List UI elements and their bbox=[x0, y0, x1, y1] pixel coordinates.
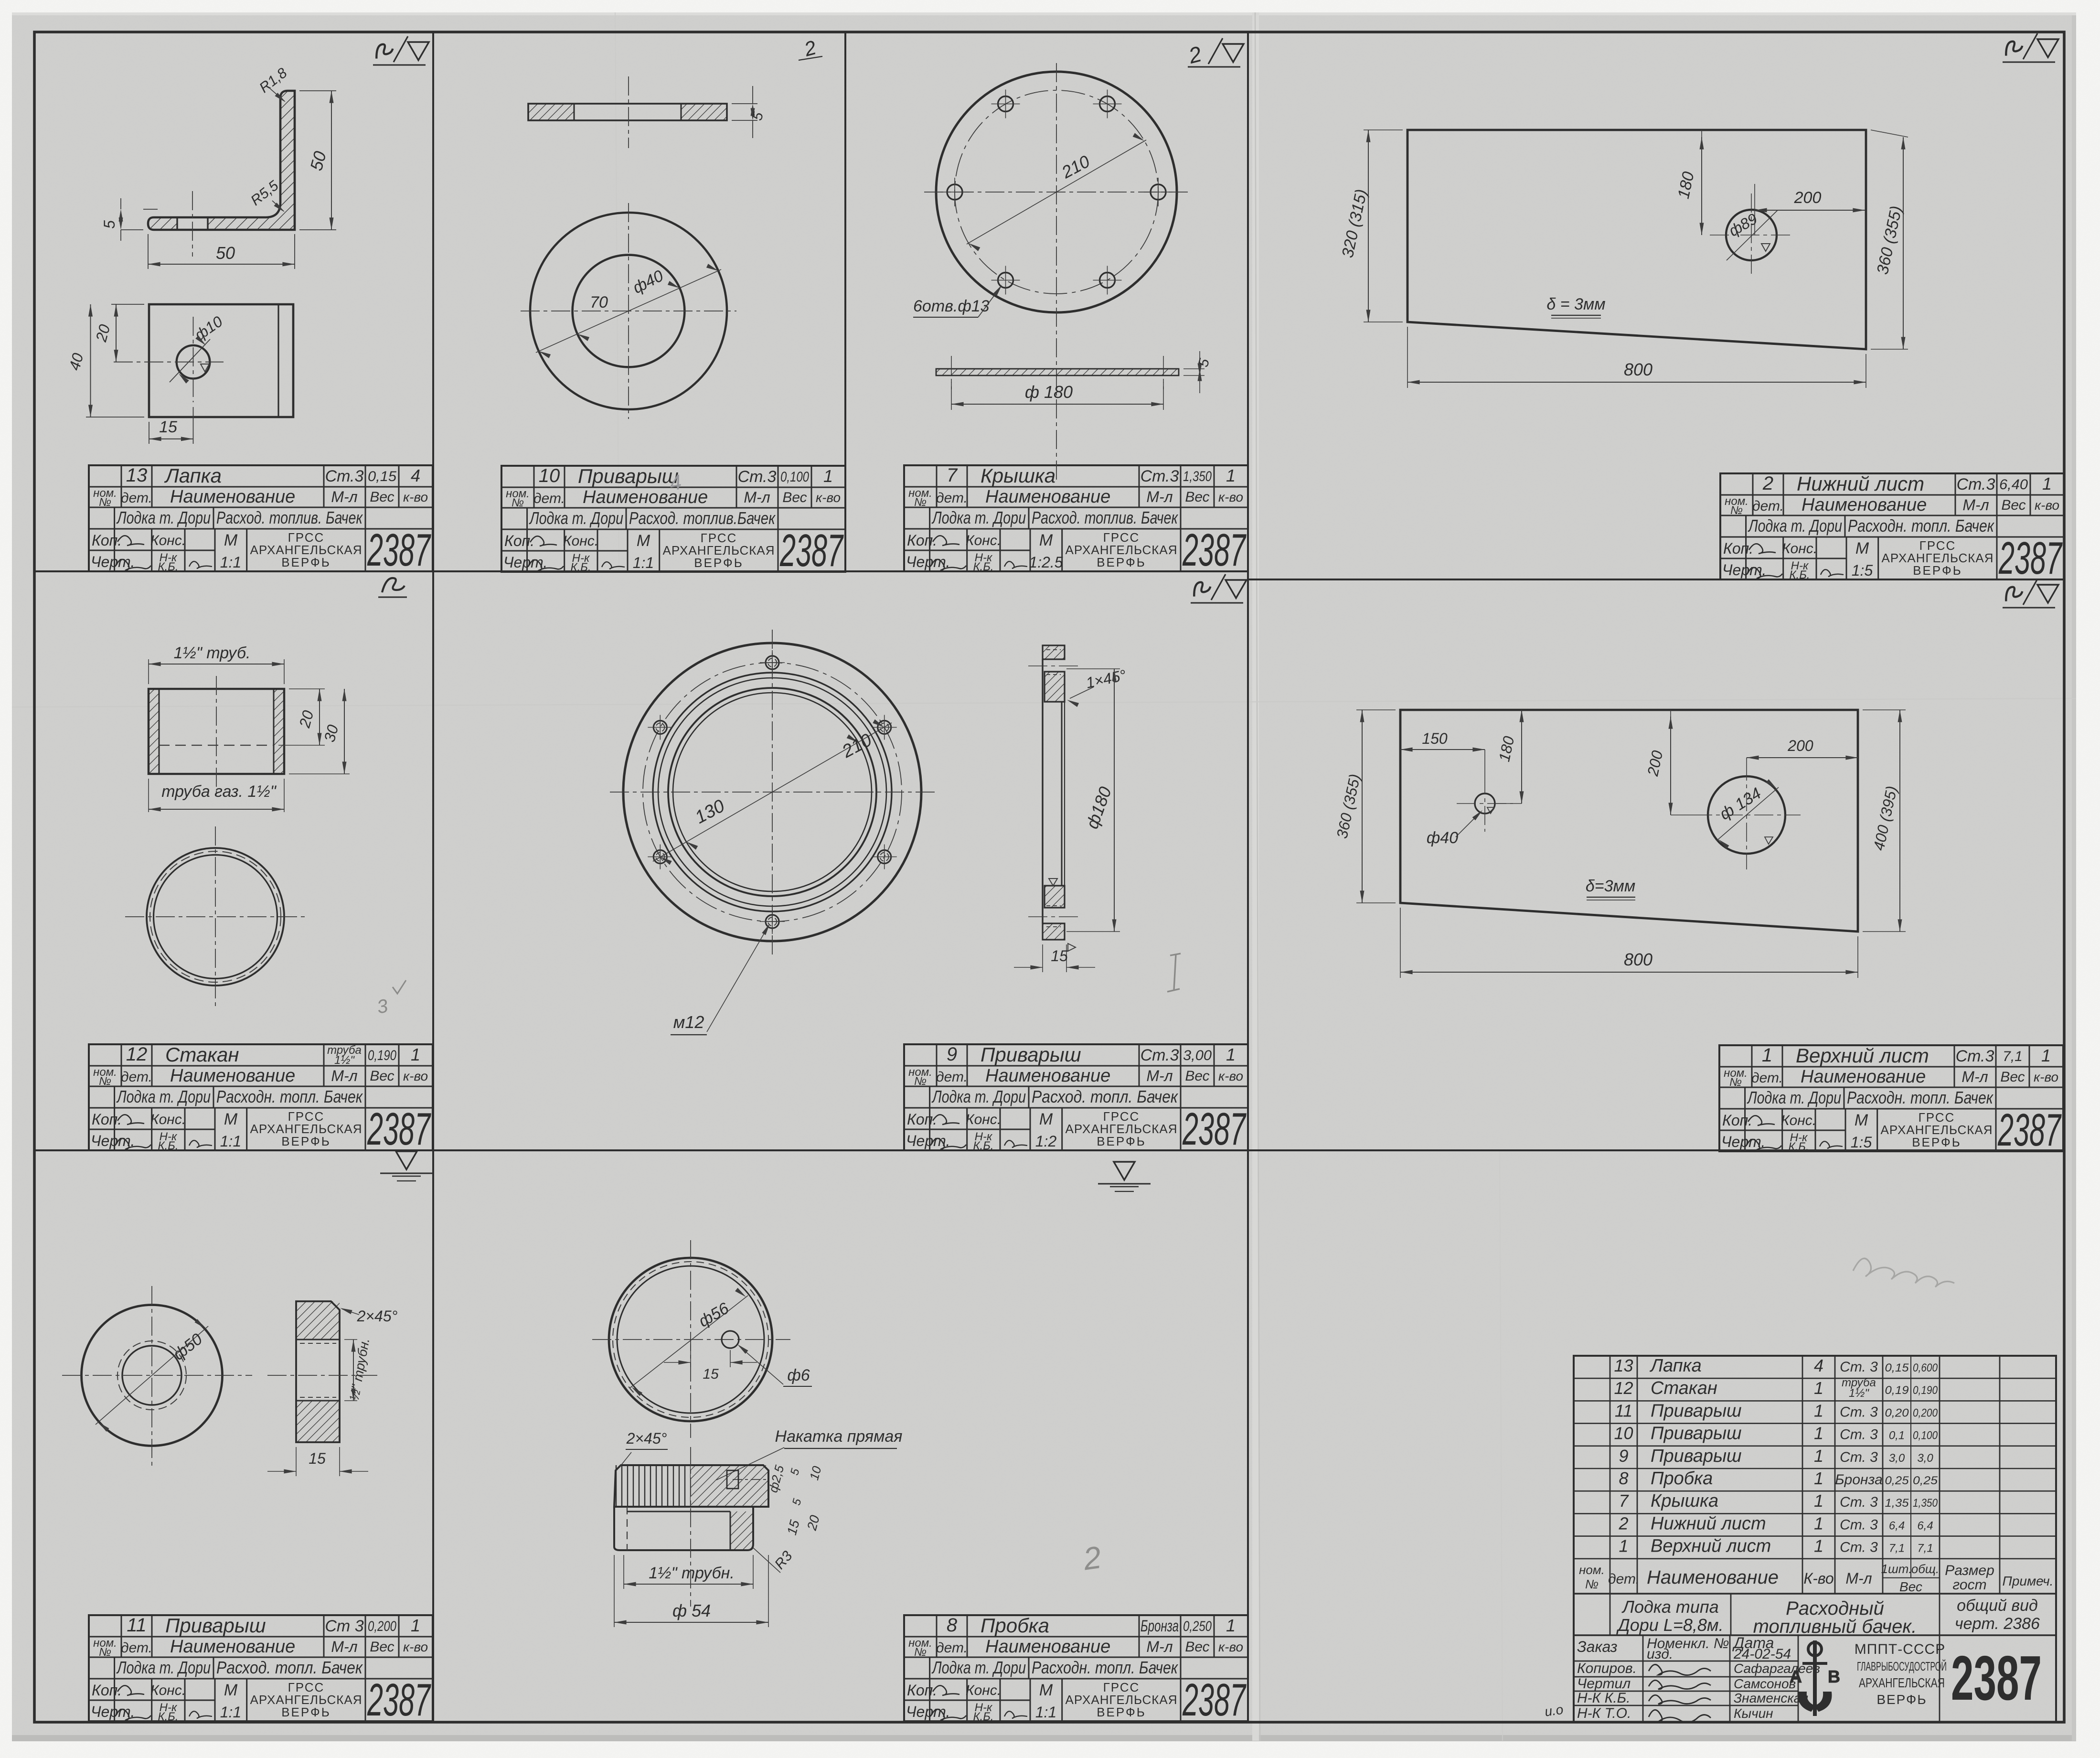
svg-text:12: 12 bbox=[126, 1044, 148, 1065]
svg-text:№: № bbox=[1585, 1577, 1599, 1591]
svg-text:к-во: к-во bbox=[1218, 490, 1243, 504]
svg-text:Вес: Вес bbox=[1185, 1068, 1209, 1084]
svg-text:δ = 3мм: δ = 3мм bbox=[1546, 295, 1605, 313]
svg-text:Ст.3: Ст.3 bbox=[1141, 467, 1179, 485]
svg-text:Нижний лист: Нижний лист bbox=[1797, 472, 1924, 495]
svg-text:дет.: дет. bbox=[936, 1640, 968, 1656]
svg-text:ГЛАВРЫБОСУДОСТРОЙ: ГЛАВРЫБОСУДОСТРОЙ bbox=[1857, 1659, 1947, 1673]
svg-text:К.Б.: К.Б. bbox=[1788, 1140, 1809, 1153]
svg-text:ф6: ф6 bbox=[787, 1366, 810, 1384]
svg-text:изд.: изд. bbox=[1647, 1646, 1673, 1662]
svg-text:Лодка т. Дори: Лодка т. Дори bbox=[1747, 1088, 1841, 1107]
svg-text:6,40: 6,40 bbox=[1999, 477, 2028, 493]
svg-text:№: № bbox=[99, 1646, 111, 1659]
svg-text:М-л: М-л bbox=[331, 488, 357, 505]
svg-text:2387: 2387 bbox=[1182, 1104, 1247, 1155]
svg-text:ф 180: ф 180 bbox=[1025, 382, 1073, 402]
svg-text:1,35: 1,35 bbox=[1885, 1497, 1909, 1510]
svg-text:1½" труб.: 1½" труб. bbox=[174, 644, 251, 662]
svg-text:11: 11 bbox=[127, 1615, 147, 1636]
svg-text:№: № bbox=[99, 1075, 111, 1088]
svg-text:АРХАНГЕЛЬСКАЯ: АРХАНГЕЛЬСКАЯ bbox=[1859, 1675, 1945, 1690]
svg-text:Вес: Вес bbox=[370, 1068, 394, 1084]
svg-text:Конс.: Конс. bbox=[150, 1112, 186, 1127]
svg-text:2387: 2387 bbox=[1997, 1104, 2062, 1156]
svg-text:Наименование: Наименование bbox=[1802, 495, 1927, 515]
svg-text:К-во: К-во bbox=[1803, 1570, 1834, 1587]
svg-text:Наименование: Наименование bbox=[170, 1637, 295, 1657]
svg-text:Ст. 3: Ст. 3 bbox=[1840, 1449, 1878, 1465]
svg-text:Нижний лист: Нижний лист bbox=[1651, 1513, 1766, 1533]
svg-text:4: 4 bbox=[1814, 1356, 1823, 1375]
svg-text:200: 200 bbox=[1787, 737, 1813, 754]
svg-text:1,350: 1,350 bbox=[1913, 1497, 1938, 1510]
svg-text:Коп.: Коп. bbox=[92, 1111, 122, 1128]
svg-text:0,600: 0,600 bbox=[1913, 1361, 1938, 1374]
svg-text:7,1: 7,1 bbox=[1917, 1542, 1933, 1555]
svg-text:К.Б.: К.Б. bbox=[973, 560, 993, 573]
svg-text:0,15: 0,15 bbox=[368, 469, 396, 484]
svg-text:1: 1 bbox=[1814, 1401, 1823, 1420]
svg-text:Расход. топлив. Бачек: Расход. топлив. Бачек bbox=[1032, 508, 1179, 527]
svg-text:Наименование: Наименование bbox=[1647, 1567, 1779, 1588]
svg-text:Приварыш: Приварыш bbox=[578, 465, 679, 487]
svg-text:м12: м12 bbox=[673, 1012, 704, 1032]
svg-text:К.Б.: К.Б. bbox=[158, 560, 178, 573]
svg-text:к-во: к-во bbox=[2034, 1070, 2058, 1084]
svg-text:Вес: Вес bbox=[370, 489, 394, 505]
svg-text:2387: 2387 bbox=[367, 525, 431, 576]
svg-text:Крышка: Крышка bbox=[981, 464, 1055, 487]
svg-text:К.Б.: К.Б. bbox=[973, 1710, 993, 1723]
svg-text:М: М bbox=[224, 1110, 238, 1128]
svg-text:Коп.: Коп. bbox=[1722, 1112, 1752, 1129]
svg-text:3,0: 3,0 bbox=[1889, 1452, 1905, 1465]
svg-text:Стакан: Стакан bbox=[1651, 1378, 1717, 1398]
svg-text:к-во: к-во bbox=[403, 1640, 428, 1654]
svg-text:6отв.ф13: 6отв.ф13 bbox=[913, 297, 990, 315]
svg-text:М: М bbox=[224, 1681, 238, 1699]
svg-text:дет.: дет. bbox=[1751, 1070, 1783, 1086]
svg-text:Н-К Т.О.: Н-К Т.О. bbox=[1577, 1705, 1631, 1721]
svg-text:МППТ-СССР: МППТ-СССР bbox=[1855, 1641, 1945, 1657]
svg-text:к-во: к-во bbox=[403, 490, 428, 504]
svg-text:1: 1 bbox=[1226, 1616, 1236, 1635]
svg-text:3,0: 3,0 bbox=[1917, 1452, 1933, 1465]
svg-text:Черт.: Черт. bbox=[1721, 1133, 1765, 1150]
svg-text:Расход. топлив. Бачек: Расход. топлив. Бачек bbox=[216, 508, 363, 527]
svg-text:Лодка т. Дори: Лодка т. Дори bbox=[116, 508, 211, 527]
svg-text:Коп.: Коп. bbox=[92, 532, 122, 549]
svg-text:дет.: дет. bbox=[121, 1640, 152, 1656]
svg-text:Самсонов: Самсонов bbox=[1734, 1676, 1796, 1691]
svg-text:Конс.: Конс. bbox=[966, 1683, 1001, 1698]
svg-text:13: 13 bbox=[1614, 1356, 1633, 1375]
svg-text:А: А bbox=[1790, 1667, 1802, 1686]
svg-text:10: 10 bbox=[1614, 1424, 1633, 1443]
svg-text:М-л: М-л bbox=[744, 489, 770, 506]
svg-text:1½": 1½" bbox=[1849, 1387, 1869, 1400]
svg-text:К.Б.: К.Б. bbox=[1789, 568, 1810, 581]
svg-text:200: 200 bbox=[1794, 189, 1822, 207]
svg-text:1:1: 1:1 bbox=[220, 554, 241, 571]
svg-text:Лодка т. Дори: Лодка т. Дори bbox=[931, 508, 1026, 527]
svg-text:1½" трубн.: 1½" трубн. bbox=[649, 1564, 735, 1582]
svg-text:δ=3мм: δ=3мм bbox=[1586, 877, 1635, 895]
svg-text:150: 150 bbox=[1422, 730, 1448, 747]
svg-text:Приварыш: Приварыш bbox=[1651, 1401, 1742, 1421]
svg-text:2387: 2387 bbox=[367, 1674, 431, 1726]
svg-text:Наименование: Наименование bbox=[1801, 1067, 1926, 1087]
svg-text:дет.: дет. bbox=[1608, 1571, 1640, 1587]
svg-text:Кычин: Кычин bbox=[1734, 1706, 1773, 1721]
svg-text:2387: 2387 bbox=[1182, 1674, 1247, 1726]
svg-text:1,350: 1,350 bbox=[1183, 469, 1212, 484]
svg-text:дет.: дет. bbox=[121, 490, 152, 506]
svg-text:Ст.3: Ст.3 bbox=[1141, 1046, 1179, 1064]
svg-text:М-л: М-л bbox=[1146, 1638, 1173, 1655]
svg-text:1:1: 1:1 bbox=[1035, 1704, 1056, 1721]
svg-text:2×45°: 2×45° bbox=[357, 1308, 398, 1325]
svg-text:8: 8 bbox=[947, 1615, 958, 1636]
svg-text:2: 2 bbox=[1762, 473, 1773, 494]
svg-text:Лодка т. Дори: Лодка т. Дори bbox=[116, 1658, 211, 1677]
svg-text:7,1: 7,1 bbox=[1889, 1542, 1905, 1555]
svg-text:Лодка т. Дори: Лодка т. Дори bbox=[116, 1087, 211, 1106]
svg-text:М: М bbox=[637, 532, 650, 550]
svg-text:1: 1 bbox=[2041, 1046, 2051, 1065]
svg-text:Черт.: Черт. bbox=[91, 1703, 135, 1720]
svg-text:1: 1 bbox=[1814, 1446, 1823, 1466]
svg-text:Размер: Размер bbox=[1945, 1563, 1994, 1578]
svg-text:К.Б.: К.Б. bbox=[158, 1139, 178, 1152]
svg-text:Конс.: Конс. bbox=[563, 533, 598, 549]
svg-text:№: № bbox=[914, 1646, 927, 1659]
svg-text:Ст. 3: Ст. 3 bbox=[1840, 1359, 1878, 1375]
svg-text:1: 1 bbox=[1762, 1045, 1772, 1066]
svg-text:0,200: 0,200 bbox=[1913, 1406, 1938, 1419]
svg-text:общий вид: общий вид bbox=[1957, 1597, 2038, 1615]
svg-text:4: 4 bbox=[411, 466, 420, 485]
svg-text:Ст. 3: Ст. 3 bbox=[1840, 1494, 1878, 1510]
svg-text:Коп.: Коп. bbox=[504, 532, 534, 549]
svg-text:Ст.3: Ст.3 bbox=[738, 468, 777, 486]
svg-text:Коп.: Коп. bbox=[1723, 540, 1753, 557]
svg-text:Лапка: Лапка bbox=[164, 464, 222, 487]
svg-text:24-02-54: 24-02-54 bbox=[1733, 1646, 1791, 1662]
svg-text:М-л: М-л bbox=[1962, 496, 1989, 514]
svg-text:2387: 2387 bbox=[1998, 533, 2063, 584]
svg-text:М-л: М-л bbox=[331, 1638, 357, 1655]
svg-text:Черт.: Черт. bbox=[906, 1703, 950, 1720]
svg-text:Вес: Вес bbox=[1899, 1579, 1922, 1594]
svg-text:Расходн. топл. Бачек: Расходн. топл. Бачек bbox=[216, 1087, 363, 1106]
svg-text:1:1: 1:1 bbox=[633, 554, 654, 571]
svg-text:1:5: 1:5 bbox=[1851, 1134, 1872, 1151]
svg-text:Приварыш: Приварыш bbox=[165, 1614, 266, 1637]
svg-text:Знаменская: Знаменская bbox=[1734, 1691, 1808, 1705]
svg-text:Расходн. топл. Бачек: Расходн. топл. Бачек bbox=[1848, 516, 1995, 536]
svg-text:Ст 3: Ст 3 bbox=[325, 1617, 363, 1635]
svg-text:0,100: 0,100 bbox=[780, 469, 809, 485]
svg-text:0,15: 0,15 bbox=[1885, 1361, 1909, 1374]
svg-text:ф 54: ф 54 bbox=[672, 1601, 711, 1620]
svg-text:2×45°: 2×45° bbox=[626, 1430, 667, 1447]
svg-text:8: 8 bbox=[1619, 1469, 1628, 1488]
svg-text:Стакан: Стакан bbox=[165, 1043, 239, 1066]
svg-text:Накатка прямая: Накатка прямая bbox=[775, 1427, 903, 1446]
svg-text:50: 50 bbox=[216, 243, 235, 263]
svg-text:Верхний лист: Верхний лист bbox=[1651, 1536, 1771, 1556]
svg-text:Вес: Вес bbox=[1185, 1639, 1209, 1655]
svg-text:1: 1 bbox=[2042, 474, 2052, 493]
svg-text:Лапка: Лапка bbox=[1649, 1356, 1702, 1376]
svg-text:М-л: М-л bbox=[1146, 488, 1173, 505]
svg-text:7,1: 7,1 bbox=[2003, 1049, 2023, 1064]
svg-text:Чертил: Чертил bbox=[1577, 1676, 1631, 1692]
svg-text:Ст.3: Ст.3 bbox=[325, 467, 364, 485]
svg-text:1½": 1½" bbox=[334, 1054, 355, 1067]
svg-text:Лодка т. Дори: Лодка т. Дори bbox=[931, 1087, 1026, 1106]
svg-text:Черт.: Черт. bbox=[503, 554, 547, 571]
svg-text:3,00: 3,00 bbox=[1183, 1048, 1212, 1063]
svg-text:Коп.: Коп. bbox=[907, 1111, 937, 1128]
svg-text:1: 1 bbox=[1814, 1378, 1823, 1398]
svg-text:труба газ. 1½": труба газ. 1½" bbox=[161, 783, 277, 801]
svg-text:Вес: Вес bbox=[782, 490, 807, 505]
svg-text:Черт.: Черт. bbox=[91, 553, 135, 570]
svg-text:Лодка т. Дори: Лодка т. Дори bbox=[1748, 516, 1842, 536]
svg-text:0,200: 0,200 bbox=[368, 1619, 396, 1634]
svg-text:ВЕРФЬ: ВЕРФЬ bbox=[1097, 1705, 1146, 1719]
svg-text:0,25: 0,25 bbox=[1913, 1474, 1938, 1487]
svg-text:ВЕРФЬ: ВЕРФЬ bbox=[694, 556, 744, 570]
svg-text:Черт.: Черт. bbox=[1722, 561, 1766, 579]
svg-text:Крышка: Крышка bbox=[1651, 1491, 1718, 1511]
svg-text:В: В bbox=[1828, 1667, 1840, 1686]
svg-text:дет.: дет. bbox=[936, 490, 968, 506]
svg-text:Лодка т. Дори: Лодка т. Дори bbox=[529, 508, 623, 528]
svg-text:М: М bbox=[1855, 1111, 1868, 1129]
svg-text:Лодка типа: Лодка типа bbox=[1621, 1597, 1718, 1617]
svg-text:Расход. топлив.Бачек: Расход. топлив.Бачек bbox=[629, 508, 776, 528]
svg-text:Расход. топл. Бачек: Расход. топл. Бачек bbox=[216, 1658, 363, 1677]
svg-text:1:5: 1:5 bbox=[1852, 562, 1873, 579]
svg-text:Вес: Вес bbox=[370, 1639, 394, 1655]
svg-text:2387: 2387 bbox=[367, 1104, 431, 1155]
svg-text:Ст.3: Ст.3 bbox=[1957, 475, 1995, 493]
svg-text:ном.: ном. bbox=[1579, 1563, 1605, 1577]
svg-text:6,4: 6,4 bbox=[1917, 1519, 1933, 1532]
svg-text:Верхний лист: Верхний лист bbox=[1796, 1044, 1929, 1067]
svg-text:2387: 2387 bbox=[779, 525, 844, 576]
svg-text:0,100: 0,100 bbox=[1913, 1429, 1938, 1442]
svg-text:Ст. 3: Ст. 3 bbox=[1840, 1404, 1878, 1420]
svg-text:70: 70 bbox=[590, 293, 608, 311]
svg-text:Наименование: Наименование bbox=[985, 487, 1110, 507]
svg-text:№: № bbox=[1730, 504, 1743, 517]
svg-text:К.Б.: К.Б. bbox=[973, 1139, 993, 1152]
svg-text:15: 15 bbox=[159, 418, 177, 436]
svg-text:0,19: 0,19 bbox=[1885, 1384, 1909, 1397]
svg-text:Дори L=8,8м.: Дори L=8,8м. bbox=[1616, 1615, 1723, 1635]
svg-text:Наименование: Наименование bbox=[583, 487, 708, 507]
svg-text:1:1: 1:1 bbox=[220, 1704, 241, 1721]
svg-text:Коп.: Коп. bbox=[907, 1682, 937, 1699]
svg-text:ВЕРФЬ: ВЕРФЬ bbox=[1876, 1692, 1927, 1707]
svg-text:Черт.: Черт. bbox=[91, 1132, 135, 1149]
svg-text:К.Б.: К.Б. bbox=[158, 1710, 178, 1723]
svg-text:2387: 2387 bbox=[1951, 1643, 2042, 1713]
svg-text:15: 15 bbox=[1051, 947, 1068, 965]
svg-text:к-во: к-во bbox=[403, 1069, 428, 1083]
svg-text:ВЕРФЬ: ВЕРФЬ bbox=[281, 555, 331, 569]
svg-text:Конс.: Конс. bbox=[966, 533, 1001, 548]
svg-text:Вес: Вес bbox=[2001, 497, 2025, 513]
svg-text:М: М bbox=[224, 531, 238, 549]
svg-text:9: 9 bbox=[947, 1044, 957, 1065]
svg-text:Ст. 3: Ст. 3 bbox=[1840, 1517, 1878, 1533]
svg-text:1: 1 bbox=[1814, 1469, 1823, 1488]
svg-text:М: М bbox=[1039, 1110, 1053, 1128]
svg-text:М-л: М-л bbox=[331, 1067, 357, 1084]
svg-text:Ст. 3: Ст. 3 bbox=[1840, 1427, 1878, 1443]
svg-text:ф40: ф40 bbox=[1427, 829, 1458, 847]
svg-text:2387: 2387 bbox=[1182, 525, 1247, 576]
svg-text:1:2: 1:2 bbox=[1035, 1133, 1057, 1150]
svg-text:1: 1 bbox=[1619, 1536, 1628, 1556]
svg-text:Наименование: Наименование bbox=[985, 1637, 1110, 1657]
svg-text:Наименование: Наименование bbox=[170, 487, 295, 507]
svg-text:Приварыш: Приварыш bbox=[981, 1043, 1081, 1066]
svg-text:Коп.: Коп. bbox=[92, 1682, 122, 1699]
svg-text:Черт.: Черт. bbox=[906, 1132, 950, 1149]
svg-text:Пробка: Пробка bbox=[1651, 1469, 1713, 1489]
svg-text:Наименование: Наименование bbox=[170, 1066, 295, 1086]
svg-text:Бронза: Бронза bbox=[1835, 1472, 1883, 1488]
svg-text:к-во: к-во bbox=[2035, 498, 2059, 513]
svg-text:2: 2 bbox=[1618, 1513, 1628, 1533]
svg-text:15: 15 bbox=[309, 1450, 326, 1467]
svg-text:1: 1 bbox=[411, 1616, 420, 1635]
svg-text:Конс.: Конс. bbox=[1781, 1113, 1816, 1128]
svg-text:дет.: дет. bbox=[121, 1069, 152, 1085]
svg-text:черт. 2386: черт. 2386 bbox=[1955, 1615, 2040, 1633]
svg-text:Конс.: Конс. bbox=[150, 533, 186, 548]
svg-text:ВЕРФЬ: ВЕРФЬ bbox=[281, 1134, 331, 1148]
svg-text:Ст. 3: Ст. 3 bbox=[1840, 1540, 1878, 1555]
svg-text:к-во: к-во bbox=[816, 490, 841, 505]
svg-text:М-л: М-л bbox=[1961, 1068, 1988, 1085]
svg-text:и.о: и.о bbox=[1544, 1702, 1564, 1719]
svg-text:0,190: 0,190 bbox=[1913, 1384, 1938, 1397]
svg-text:Черт.: Черт. bbox=[906, 553, 950, 570]
svg-text:К.Б.: К.Б. bbox=[570, 561, 591, 574]
svg-text:№: № bbox=[914, 496, 927, 509]
svg-text:ВЕРФЬ: ВЕРФЬ bbox=[281, 1705, 331, 1719]
svg-text:к-во: к-во bbox=[1218, 1640, 1243, 1654]
svg-text:1: 1 bbox=[1814, 1536, 1823, 1556]
svg-text:№: № bbox=[99, 496, 111, 509]
svg-text:Пробка: Пробка bbox=[981, 1614, 1049, 1637]
svg-text:Конс.: Конс. bbox=[150, 1683, 186, 1698]
svg-text:М: М bbox=[1855, 539, 1869, 557]
svg-text:1: 1 bbox=[1814, 1491, 1823, 1511]
svg-text:0,190: 0,190 bbox=[368, 1048, 396, 1063]
svg-text:Приварыш: Приварыш bbox=[1651, 1424, 1742, 1444]
svg-text:1: 1 bbox=[411, 1045, 420, 1064]
svg-text:к-во: к-во bbox=[1218, 1069, 1243, 1083]
svg-text:Н-К К.Б.: Н-К К.Б. bbox=[1577, 1690, 1631, 1706]
svg-text:Коп.: Коп. bbox=[907, 532, 937, 549]
svg-text:дет.: дет. bbox=[1752, 498, 1784, 514]
svg-text:1: 1 bbox=[1226, 1045, 1236, 1064]
svg-text:7: 7 bbox=[1619, 1491, 1629, 1511]
svg-text:М: М bbox=[1039, 1681, 1053, 1699]
svg-text:ВЕРФЬ: ВЕРФЬ bbox=[1097, 1134, 1146, 1148]
svg-text:Наименование: Наименование bbox=[985, 1066, 1110, 1086]
svg-text:12: 12 bbox=[1614, 1378, 1633, 1398]
svg-text:Приварыш: Приварыш bbox=[1651, 1446, 1742, 1466]
svg-text:гост: гост bbox=[1952, 1577, 1986, 1593]
svg-text:Заказ: Заказ bbox=[1577, 1638, 1618, 1655]
svg-text:1:1: 1:1 bbox=[220, 1133, 241, 1150]
svg-text:Вес: Вес bbox=[1185, 489, 1209, 505]
svg-text:0,20: 0,20 bbox=[1885, 1406, 1909, 1419]
svg-text:1шт.: 1шт. bbox=[1881, 1562, 1912, 1576]
svg-text:Расходн. топл. Бачек: Расходн. топл. Бачек bbox=[1847, 1088, 1994, 1107]
svg-text:6,4: 6,4 bbox=[1889, 1519, 1905, 1532]
svg-text:М: М bbox=[1039, 531, 1053, 549]
svg-text:ВЕРФЬ: ВЕРФЬ bbox=[1913, 563, 1962, 578]
svg-text:общ.: общ. bbox=[1911, 1562, 1939, 1576]
svg-text:М-л: М-л bbox=[1845, 1570, 1872, 1587]
svg-text:13: 13 bbox=[126, 465, 148, 486]
svg-text:Конс.: Конс. bbox=[1782, 541, 1817, 557]
svg-text:0,250: 0,250 bbox=[1183, 1619, 1212, 1634]
svg-text:11: 11 bbox=[1615, 1401, 1632, 1420]
svg-text:Лодка т. Дори: Лодка т. Дори bbox=[931, 1658, 1026, 1677]
svg-text:ВЕРФЬ: ВЕРФЬ bbox=[1912, 1135, 1961, 1149]
svg-text:5: 5 bbox=[101, 220, 118, 229]
svg-text:9: 9 bbox=[1619, 1446, 1628, 1466]
svg-text:Расходн. топл. Бачек: Расходн. топл. Бачек bbox=[1032, 1658, 1179, 1677]
svg-text:800: 800 bbox=[1624, 950, 1652, 969]
svg-text:топливный бачек.: топливный бачек. bbox=[1753, 1616, 1917, 1637]
svg-text:№: № bbox=[1729, 1076, 1742, 1089]
svg-text:М-л: М-л bbox=[1146, 1067, 1173, 1084]
svg-text:№: № bbox=[512, 496, 524, 509]
svg-text:Копиров.: Копиров. bbox=[1577, 1661, 1637, 1676]
svg-text:дет.: дет. bbox=[533, 491, 565, 506]
svg-text:0,25: 0,25 bbox=[1885, 1474, 1909, 1487]
svg-text:Ст.3: Ст.3 bbox=[1956, 1047, 1994, 1065]
svg-text:Конс.: Конс. bbox=[966, 1112, 1001, 1127]
svg-text:0,1: 0,1 bbox=[1889, 1429, 1905, 1442]
svg-text:Вес: Вес bbox=[2000, 1069, 2025, 1085]
svg-text:1: 1 bbox=[1226, 466, 1236, 485]
svg-text:Примеч.: Примеч. bbox=[2003, 1574, 2054, 1588]
svg-text:7: 7 bbox=[947, 465, 958, 486]
svg-text:дет.: дет. bbox=[936, 1069, 968, 1085]
svg-text:Расход. топл. Бачек: Расход. топл. Бачек bbox=[1032, 1087, 1179, 1106]
svg-text:15: 15 bbox=[703, 1366, 719, 1382]
svg-text:№: № bbox=[914, 1075, 927, 1088]
svg-text:Бронза: Бронза bbox=[1141, 1617, 1179, 1635]
svg-text:10: 10 bbox=[539, 465, 560, 486]
svg-text:1: 1 bbox=[1814, 1424, 1823, 1443]
svg-text:1:2.5: 1:2.5 bbox=[1029, 554, 1063, 571]
